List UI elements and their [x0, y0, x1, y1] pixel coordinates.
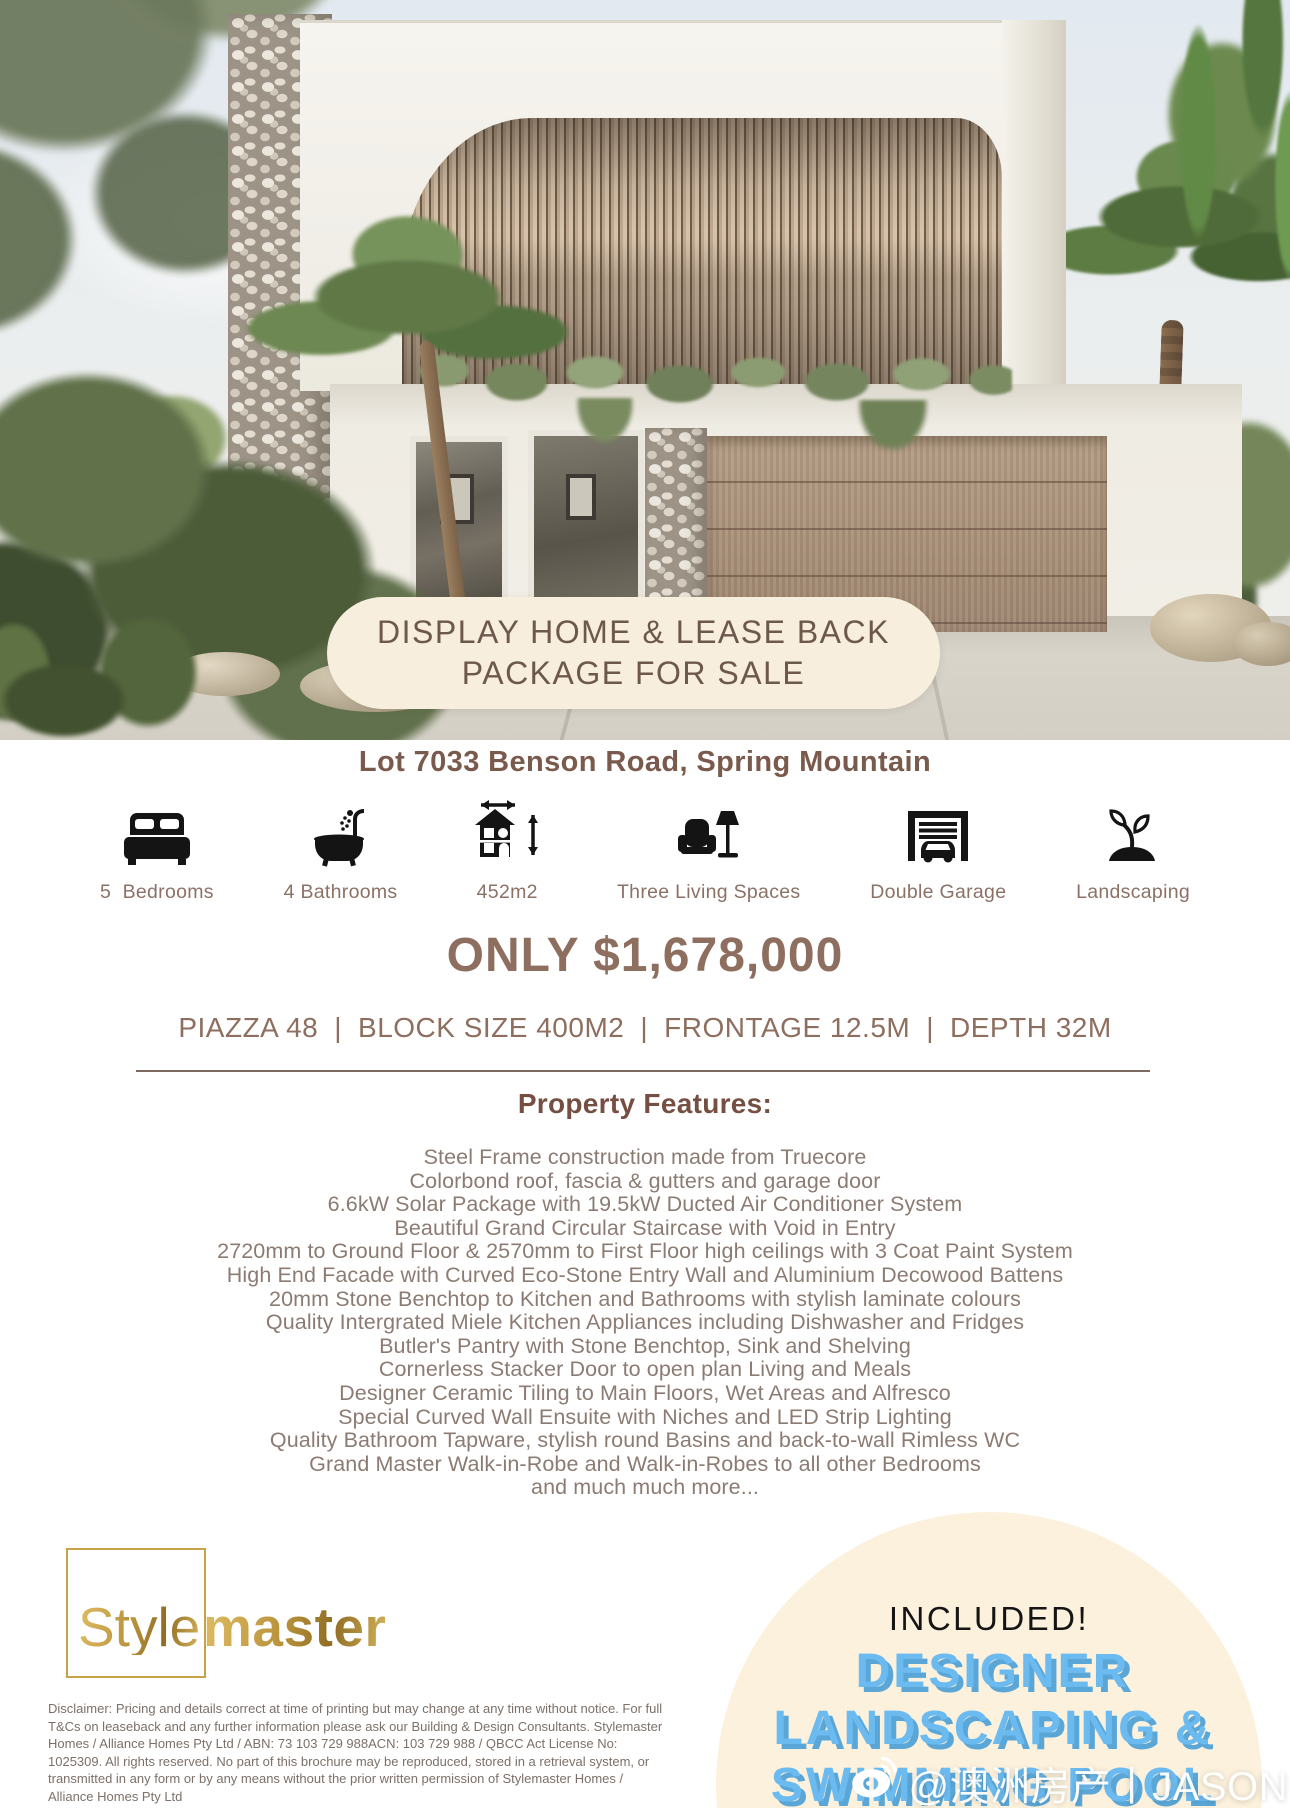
- feature-item: 20mm Stone Benchtop to Kitchen and Bathr…: [80, 1288, 1210, 1312]
- feature-item: 6.6kW Solar Package with 19.5kW Ducted A…: [80, 1193, 1210, 1217]
- feature-item: Quality Intergrated Miele Kitchen Applia…: [80, 1311, 1210, 1335]
- feature-item: 2720mm to Ground Floor & 2570mm to First…: [80, 1240, 1210, 1264]
- feature-item: High End Facade with Curved Eco-Stone En…: [80, 1264, 1210, 1288]
- included-line: LANDSCAPING &: [703, 1700, 1283, 1757]
- landscaping-icon: [1095, 797, 1171, 873]
- house-area-icon: [467, 797, 547, 873]
- weibo-icon: [849, 1752, 901, 1808]
- palm-fronds-top-right: [1080, 0, 1290, 330]
- house-photo: DISPLAY HOME & LEASE BACK PACKAGE FOR SA…: [0, 0, 1290, 740]
- hanging-plant-trail: [838, 400, 948, 486]
- bed-icon: [119, 797, 195, 873]
- stylemaster-logo-master: master: [203, 1600, 386, 1655]
- property-icon-item: Three Living Spaces: [617, 797, 800, 904]
- property-icon-item: 452m2: [467, 797, 547, 904]
- property-address: Lot 7033 Benson Road, Spring Mountain: [0, 746, 1290, 779]
- property-icon-label: 452m2: [477, 881, 538, 904]
- divider-line: [136, 1070, 1150, 1072]
- property-icon-label: 5 Bedrooms: [100, 881, 214, 904]
- spec-divider: |: [334, 1012, 342, 1043]
- feature-item: Cornerless Stacker Door to open plan Liv…: [80, 1358, 1210, 1382]
- feature-item: Grand Master Walk-in-Robe and Walk-in-Ro…: [80, 1453, 1210, 1477]
- included-kicker: INCLUDED!: [716, 1600, 1262, 1638]
- spec-segment: BLOCK SIZE 400M2: [358, 1012, 624, 1043]
- property-icons-row: 5 Bedrooms4 Bathrooms452m2Three Living S…: [100, 797, 1190, 904]
- property-icon-label: Three Living Spaces: [617, 881, 800, 904]
- feature-item: Special Curved Wall Ensuite with Niches …: [80, 1406, 1210, 1430]
- property-icon-label: Double Garage: [870, 881, 1006, 904]
- feature-item: Colorbond roof, fascia & gutters and gar…: [80, 1170, 1210, 1194]
- spec-segment: FRONTAGE 12.5M: [664, 1012, 910, 1043]
- feature-item: Butler's Pantry with Stone Benchtop, Sin…: [80, 1335, 1210, 1359]
- spec-segment: DEPTH 32M: [950, 1012, 1112, 1043]
- grass-tuft: [0, 608, 260, 740]
- banner-line-2: PACKAGE FOR SALE: [462, 653, 806, 694]
- property-icon-label: 4 Bathrooms: [284, 881, 398, 904]
- wall-art: [566, 474, 596, 520]
- features-heading: Property Features:: [0, 1088, 1290, 1120]
- feature-item: Designer Ceramic Tiling to Main Floors, …: [80, 1382, 1210, 1406]
- bath-icon: [303, 797, 379, 873]
- property-icon-item: Landscaping: [1076, 797, 1190, 904]
- feature-item: Quality Bathroom Tapware, stylish round …: [80, 1429, 1210, 1453]
- features-list: Steel Frame construction made from Truec…: [80, 1146, 1210, 1500]
- spec-segment: PIAZZA 48: [178, 1012, 318, 1043]
- garage-icon: [900, 797, 976, 873]
- spec-divider: |: [640, 1012, 648, 1043]
- feature-item: Beautiful Grand Circular Staircase with …: [80, 1217, 1210, 1241]
- spec-divider: |: [926, 1012, 934, 1043]
- living-icon: [671, 797, 747, 873]
- price-headline: ONLY $1,678,000: [0, 928, 1290, 983]
- property-icon-label: Landscaping: [1076, 881, 1190, 904]
- banner-line-1: DISPLAY HOME & LEASE BACK: [377, 612, 890, 653]
- stylemaster-logo-style: Style: [78, 1600, 200, 1655]
- included-line: DESIGNER: [703, 1643, 1283, 1700]
- property-icon-item: 5 Bedrooms: [100, 797, 214, 904]
- watermark: @澳洲房产丨JASON: [849, 1752, 1288, 1808]
- disclaimer-text: Disclaimer: Pricing and details correct …: [48, 1700, 668, 1806]
- specs-line: PIAZZA 48|BLOCK SIZE 400M2|FRONTAGE 12.5…: [0, 1012, 1290, 1044]
- feature-item: Steel Frame construction made from Truec…: [80, 1146, 1210, 1170]
- property-icon-item: 4 Bathrooms: [284, 797, 398, 904]
- feature-item: and much much more...: [80, 1476, 1210, 1500]
- watermark-text: @澳洲房产丨JASON: [909, 1754, 1288, 1808]
- property-icon-item: Double Garage: [870, 797, 1006, 904]
- banner-pill: DISPLAY HOME & LEASE BACK PACKAGE FOR SA…: [327, 597, 940, 709]
- flyer: DISPLAY HOME & LEASE BACK PACKAGE FOR SA…: [0, 0, 1290, 1808]
